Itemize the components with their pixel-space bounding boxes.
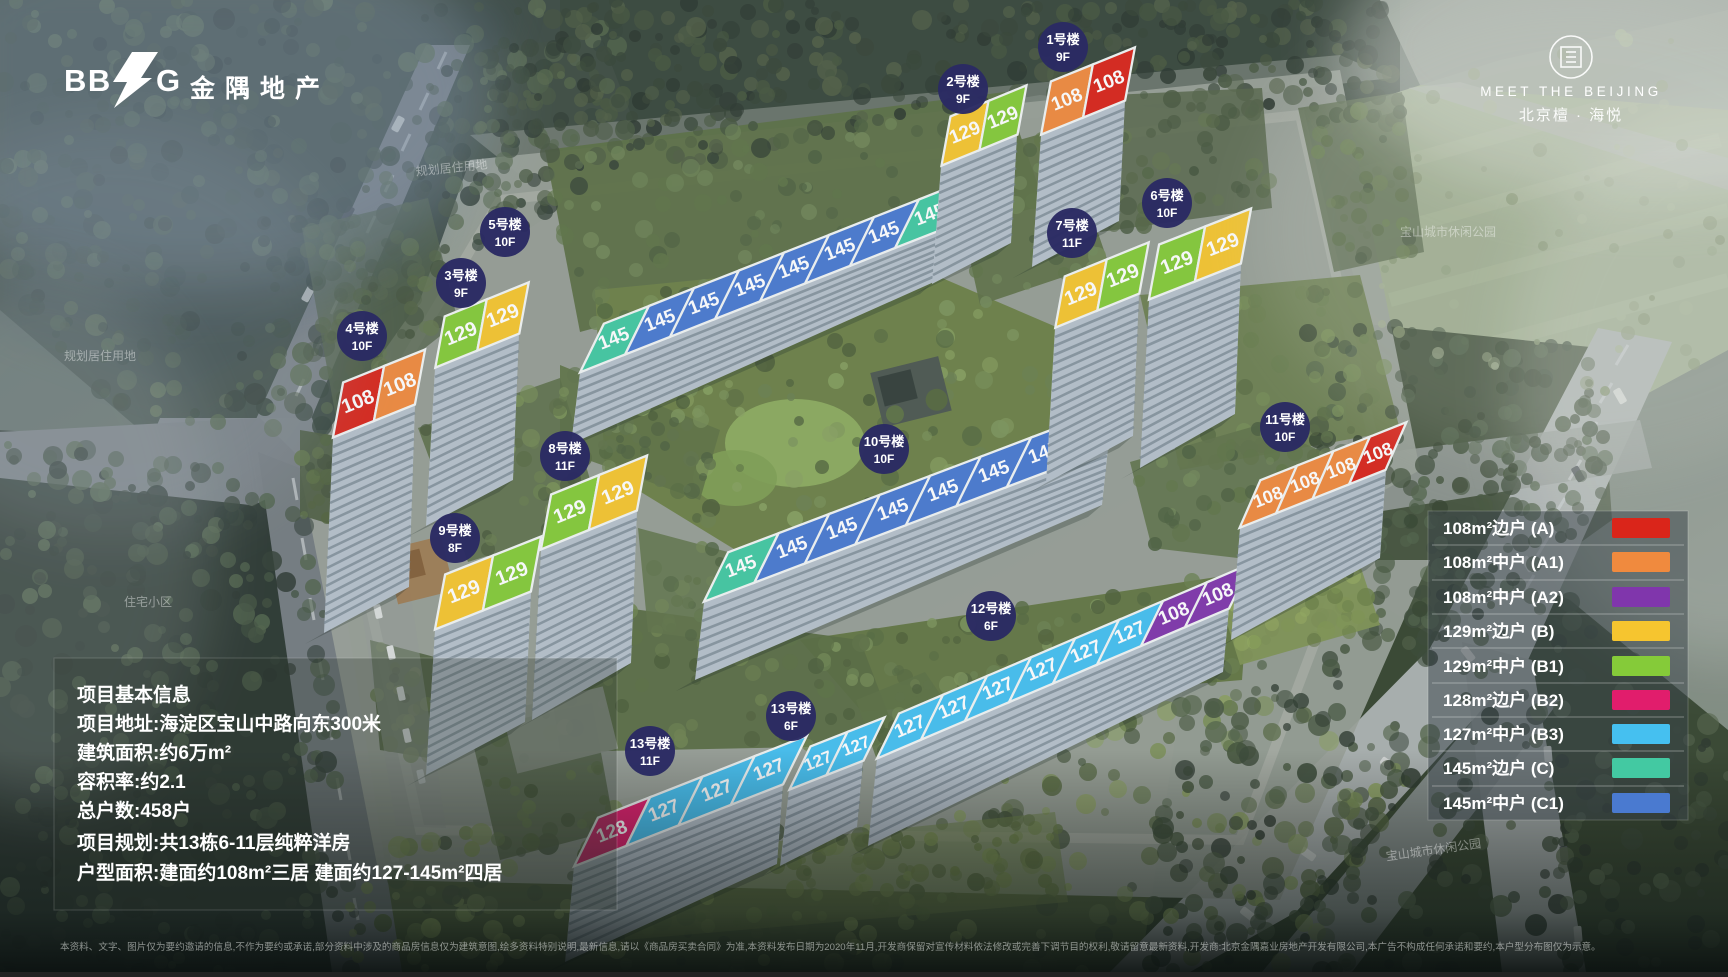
svg-text:9F: 9F — [1056, 50, 1070, 64]
svg-text:9F: 9F — [956, 92, 970, 106]
svg-text:10F: 10F — [874, 452, 895, 466]
svg-text:10F: 10F — [1275, 430, 1296, 444]
svg-text:108m²中户 (A2): 108m²中户 (A2) — [1443, 587, 1564, 607]
svg-text:MEET THE BEIJING: MEET THE BEIJING — [1480, 84, 1662, 99]
svg-text:规划居住用地: 规划居住用地 — [64, 348, 136, 363]
svg-text:127m²中户 (B3): 127m²中户 (B3) — [1443, 724, 1564, 744]
svg-text:BB: BB — [64, 63, 112, 98]
svg-text:10号楼: 10号楼 — [864, 434, 904, 449]
svg-text:容积率:约2.1: 容积率:约2.1 — [77, 770, 186, 793]
svg-text:4号楼: 4号楼 — [345, 321, 378, 336]
svg-text:项目基本信息: 项目基本信息 — [77, 683, 191, 706]
svg-text:1号楼: 1号楼 — [1046, 32, 1079, 47]
svg-text:北京檀 · 海悦: 北京檀 · 海悦 — [1519, 106, 1623, 124]
svg-text:总户数:458户: 总户数:458户 — [77, 799, 191, 822]
svg-text:108m²中户 (A1): 108m²中户 (A1) — [1443, 552, 1564, 572]
svg-text:129m²边户 (B): 129m²边户 (B) — [1443, 621, 1554, 641]
svg-text:项目地址:海淀区宝山中路向东300米: 项目地址:海淀区宝山中路向东300米 — [77, 712, 382, 735]
svg-text:10F: 10F — [1157, 206, 1178, 220]
svg-text:10F: 10F — [352, 339, 373, 353]
svg-text:建筑面积:约6万m²: 建筑面积:约6万m² — [77, 741, 231, 764]
svg-text:3号楼: 3号楼 — [444, 268, 477, 283]
svg-text:8F: 8F — [448, 541, 462, 555]
svg-text:11号楼: 11号楼 — [1265, 412, 1305, 427]
svg-text:10F: 10F — [495, 235, 516, 249]
svg-text:户型面积:建面约108m²三居 建面约127-145m²四: 户型面积:建面约108m²三居 建面约127-145m²四居 — [77, 861, 502, 884]
svg-text:145m²边户 (C): 145m²边户 (C) — [1443, 758, 1554, 778]
svg-text:金隅地产: 金隅地产 — [189, 74, 330, 103]
svg-text:6F: 6F — [784, 719, 798, 733]
svg-text:11F: 11F — [1062, 236, 1082, 250]
svg-text:7号楼: 7号楼 — [1055, 218, 1088, 233]
svg-text:2号楼: 2号楼 — [946, 74, 979, 89]
svg-text:12号楼: 12号楼 — [971, 601, 1011, 616]
svg-text:9F: 9F — [454, 286, 468, 300]
svg-text:129m²中户 (B1): 129m²中户 (B1) — [1443, 656, 1564, 676]
svg-text:住宅小区: 住宅小区 — [124, 594, 172, 609]
svg-text:9号楼: 9号楼 — [438, 523, 471, 538]
svg-text:13号楼: 13号楼 — [771, 701, 811, 716]
svg-text:本资料、文字、图片仅为要约邀请的信息,不作为要约或承诺,部分: 本资料、文字、图片仅为要约邀请的信息,不作为要约或承诺,部分资料中涉及的商品房信… — [60, 941, 1601, 953]
svg-text:13号楼: 13号楼 — [630, 736, 670, 751]
svg-text:11F: 11F — [640, 754, 660, 768]
svg-text:128m²边户 (B2): 128m²边户 (B2) — [1443, 690, 1564, 710]
svg-text:G: G — [156, 63, 180, 98]
svg-text:项目规划:共13栋6-11层纯粹洋房: 项目规划:共13栋6-11层纯粹洋房 — [77, 831, 350, 854]
svg-text:108m²边户 (A): 108m²边户 (A) — [1443, 518, 1554, 538]
svg-text:5号楼: 5号楼 — [488, 217, 521, 232]
svg-text:8号楼: 8号楼 — [548, 441, 581, 456]
svg-text:6F: 6F — [984, 619, 998, 633]
svg-text:6号楼: 6号楼 — [1150, 188, 1183, 203]
svg-text:145m²中户 (C1): 145m²中户 (C1) — [1443, 793, 1564, 813]
svg-text:宝山城市休闲公园: 宝山城市休闲公园 — [1400, 224, 1496, 239]
svg-text:11F: 11F — [555, 459, 575, 473]
